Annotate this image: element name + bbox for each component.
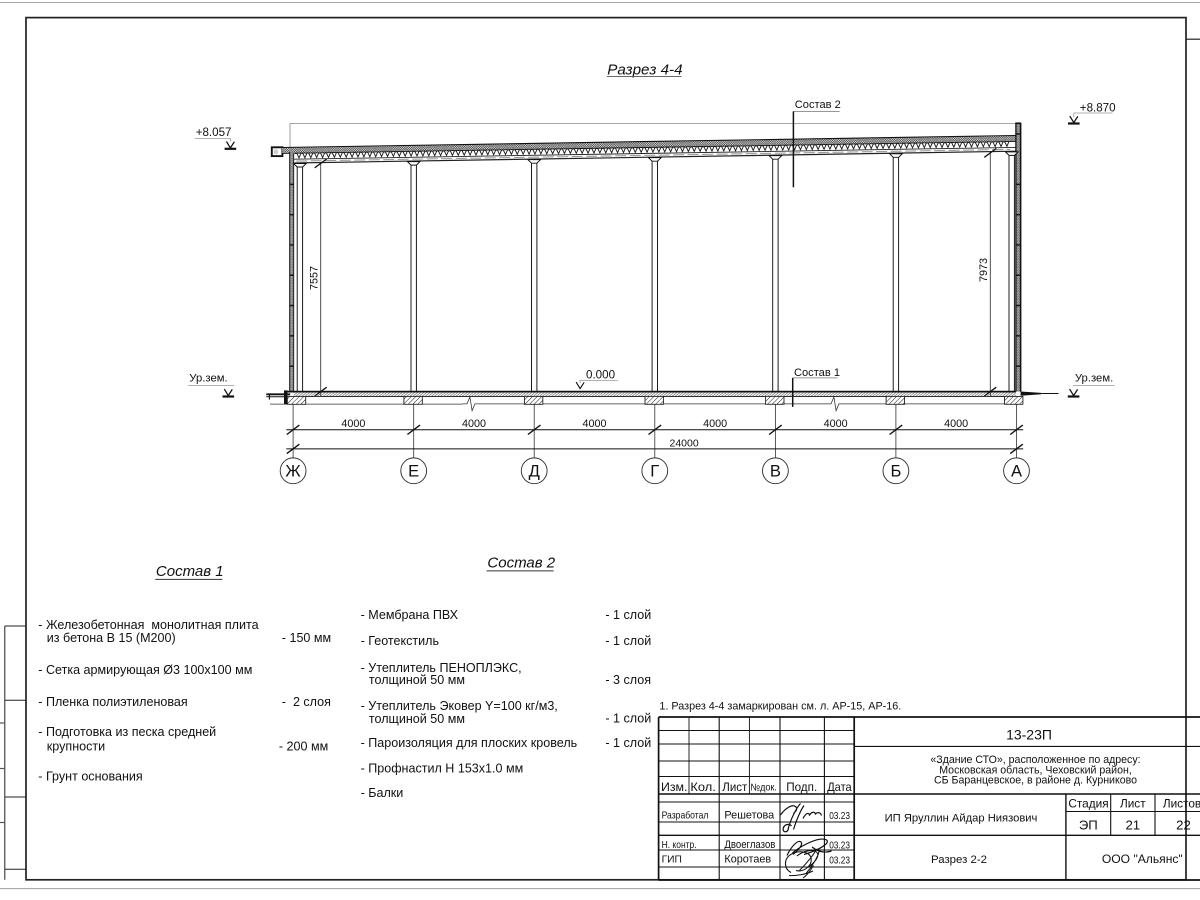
svg-text:крупности: крупности	[47, 739, 105, 753]
svg-text:+8.870: +8.870	[1080, 101, 1116, 114]
svg-text:- Подготовка из песка средней: - Подготовка из песка средней	[38, 725, 216, 739]
svg-text:- 200 мм: - 200 мм	[279, 739, 328, 753]
svg-text:№док.: №док.	[750, 783, 777, 794]
svg-text:4000: 4000	[824, 418, 848, 430]
svg-text:Коротаев: Коротаев	[724, 854, 771, 866]
svg-text:ИП Яруллин Айдар Ниязович: ИП Яруллин Айдар Ниязович	[885, 812, 1038, 824]
svg-text:Лист: Лист	[722, 780, 747, 794]
svg-text:Листов: Листов	[1163, 797, 1200, 811]
svg-text:Двоеглазов: Двоеглазов	[724, 839, 775, 851]
svg-text:Стадия: Стадия	[1068, 797, 1108, 811]
svg-text:Г: Г	[650, 462, 659, 481]
svg-text:Е: Е	[408, 462, 419, 481]
svg-text:Состав 1: Состав 1	[156, 563, 224, 580]
svg-text:ООО "Альянс": ООО "Альянс"	[1102, 852, 1183, 866]
svg-text:13-23П: 13-23П	[1006, 727, 1052, 743]
svg-text:- 2 слоя: - 2 слоя	[282, 695, 331, 709]
svg-text:- 1 слой: - 1 слой	[605, 736, 651, 750]
svg-text:Состав 1: Состав 1	[794, 367, 840, 379]
svg-text:- Утеплитель Эковер Y=100 кг/м: - Утеплитель Эковер Y=100 кг/м3,	[361, 699, 558, 713]
svg-text:Ур.зем.: Ур.зем.	[1075, 373, 1113, 385]
svg-text:В: В	[770, 462, 781, 481]
svg-text:1. Разрез 4-4 замаркирован см.: 1. Разрез 4-4 замаркирован см. л. АР-15,…	[659, 701, 901, 713]
svg-text:- Геотекстиль: - Геотекстиль	[361, 634, 440, 648]
svg-text:Разработал: Разработал	[662, 809, 709, 821]
svg-text:Разрез 4-4: Разрез 4-4	[607, 61, 682, 78]
svg-text:Лист: Лист	[1120, 797, 1146, 811]
svg-text:Кол.: Кол.	[690, 780, 716, 794]
svg-text:- 3 слоя: - 3 слоя	[605, 673, 651, 687]
svg-text:- Сетка армирующая Ø3 100х100: - Сетка армирующая Ø3 100х100 мм	[38, 663, 252, 677]
svg-text:Дата: Дата	[827, 780, 852, 794]
svg-text:4000: 4000	[582, 418, 606, 430]
svg-text:- 1 слой: - 1 слой	[605, 634, 651, 648]
svg-text:Подп.: Подп.	[786, 780, 817, 794]
svg-text:4000: 4000	[944, 418, 968, 430]
svg-text:03.23: 03.23	[829, 811, 850, 822]
svg-text:Н. контр.: Н. контр.	[662, 840, 697, 851]
svg-text:- Пленка полиэтиленовая: - Пленка полиэтиленовая	[38, 695, 187, 709]
svg-text:4000: 4000	[703, 418, 727, 430]
svg-text:7973: 7973	[978, 258, 990, 282]
svg-text:А: А	[1011, 462, 1023, 481]
svg-text:ЭП: ЭП	[1079, 817, 1098, 832]
svg-text:- Мембрана ПВХ: - Мембрана ПВХ	[361, 608, 459, 622]
svg-text:Б: Б	[890, 462, 901, 481]
svg-text:СБ Баранцевское, в районе д. К: СБ Баранцевское, в районе д. Курниково	[934, 775, 1137, 787]
svg-text:03.23: 03.23	[829, 856, 850, 867]
svg-text:Д: Д	[529, 462, 540, 481]
svg-text:толщиной 50 мм: толщиной 50 мм	[369, 673, 465, 687]
svg-text:- Профнастил Н 153х1.0 мм: - Профнастил Н 153х1.0 мм	[361, 761, 524, 775]
svg-text:толщиной 50 мм: толщиной 50 мм	[369, 712, 465, 726]
svg-text:+8.057: +8.057	[196, 126, 232, 139]
svg-text:Состав 2: Состав 2	[487, 555, 555, 572]
svg-text:4000: 4000	[462, 418, 486, 430]
svg-text:- 1 слой: - 1 слой	[605, 608, 651, 622]
svg-text:22: 22	[1176, 817, 1191, 832]
svg-text:03.23: 03.23	[829, 841, 850, 852]
svg-text:7557: 7557	[309, 266, 321, 290]
svg-text:4000: 4000	[341, 418, 365, 430]
svg-text:- 150 мм: - 150 мм	[282, 631, 331, 645]
svg-text:- Грунт основания: - Грунт основания	[38, 769, 142, 783]
svg-text:Ур.зем.: Ур.зем.	[189, 373, 227, 385]
svg-text:Изм.: Изм.	[661, 780, 688, 794]
svg-text:ГИП: ГИП	[662, 855, 682, 866]
svg-text:Ж: Ж	[285, 462, 301, 481]
svg-text:Состав 2: Состав 2	[795, 99, 841, 111]
svg-text:- 1 слой: - 1 слой	[605, 711, 651, 725]
svg-text:- Пароизоляция для плоских кро: - Пароизоляция для плоских кровель	[361, 736, 578, 750]
svg-text:из бетона В 15 (М200): из бетона В 15 (М200)	[47, 631, 176, 645]
svg-text:21: 21	[1125, 817, 1140, 832]
svg-text:24000: 24000	[670, 438, 699, 450]
svg-text:Решетова: Решетова	[724, 809, 774, 821]
svg-text:- Балки: - Балки	[361, 786, 404, 800]
svg-text:0.000: 0.000	[586, 368, 615, 381]
svg-text:Разрез 2-2: Разрез 2-2	[931, 854, 987, 866]
